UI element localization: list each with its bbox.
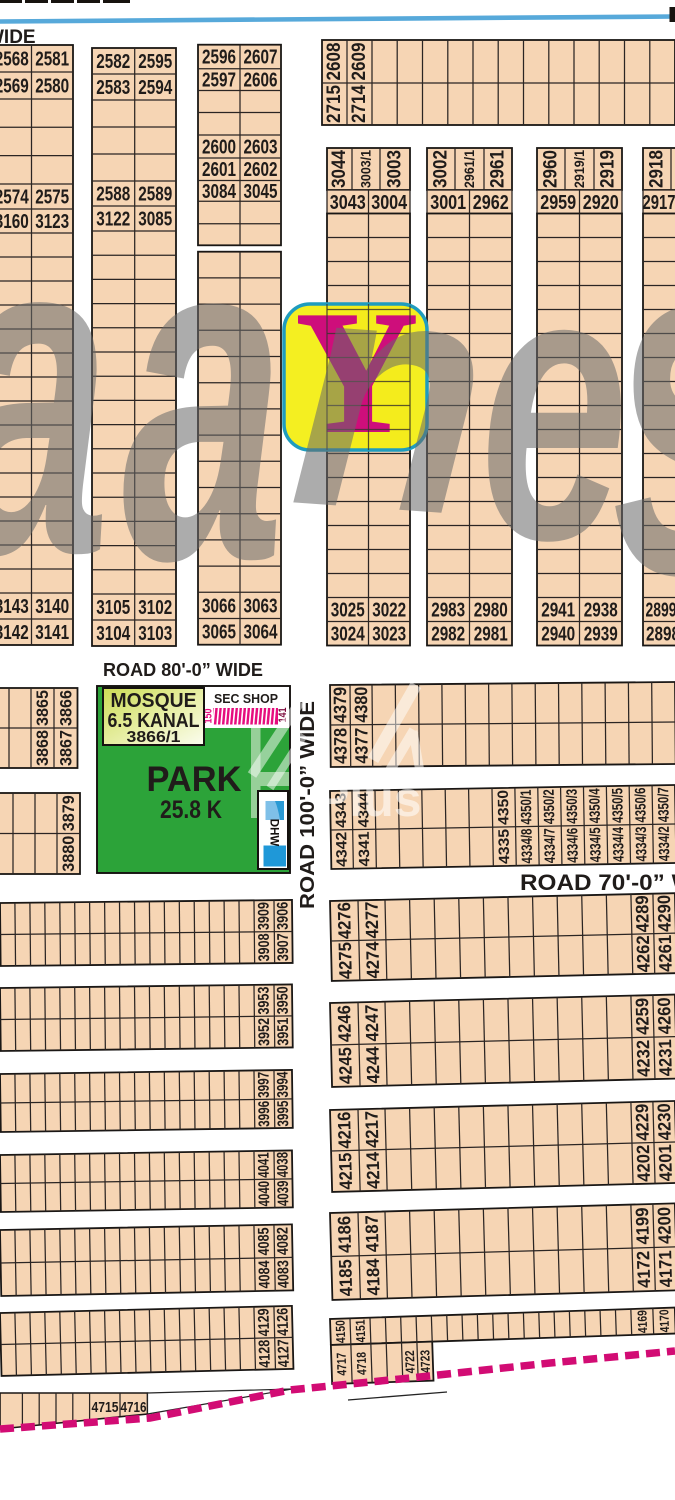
svg-text:4040: 4040 — [256, 1181, 273, 1207]
svg-text:3866/1: 3866/1 — [127, 729, 181, 746]
svg-text:4217: 4217 — [362, 1111, 383, 1149]
svg-text:3003: 3003 — [385, 150, 406, 188]
svg-text:s: s — [612, 121, 675, 678]
svg-text:4129: 4129 — [255, 1308, 273, 1337]
svg-text:4171: 4171 — [655, 1250, 675, 1288]
svg-text:3880: 3880 — [59, 836, 78, 872]
svg-text:3868: 3868 — [33, 730, 52, 766]
svg-text:2960: 2960 — [541, 150, 562, 188]
svg-text:2961/1: 2961/1 — [462, 150, 477, 188]
svg-text:4128: 4128 — [256, 1339, 274, 1368]
svg-text:2581: 2581 — [35, 49, 69, 71]
svg-text:4274: 4274 — [362, 941, 383, 978]
svg-text:3906: 3906 — [275, 901, 292, 929]
svg-text:n: n — [283, 200, 498, 586]
svg-text:4350/3: 4350/3 — [564, 789, 582, 824]
svg-text:2583: 2583 — [96, 77, 130, 99]
svg-text:PARK: PARK — [147, 759, 242, 799]
svg-text:4184: 4184 — [363, 1258, 384, 1296]
svg-text:2961: 2961 — [488, 150, 509, 188]
svg-text:e: e — [480, 189, 628, 621]
svg-text:4275: 4275 — [335, 942, 356, 979]
svg-text:3908: 3908 — [256, 933, 273, 961]
svg-text:3865: 3865 — [33, 690, 52, 726]
svg-text:4334/3: 4334/3 — [633, 826, 651, 861]
svg-text:4722: 4722 — [402, 1350, 418, 1373]
svg-text:2569: 2569 — [0, 76, 29, 98]
svg-text:4377: 4377 — [351, 728, 371, 764]
svg-text:2568: 2568 — [0, 49, 29, 71]
svg-text:4214: 4214 — [363, 1152, 384, 1190]
svg-text:2580: 2580 — [35, 76, 69, 98]
svg-text:2714: 2714 — [349, 85, 370, 123]
svg-text:4379: 4379 — [330, 687, 350, 723]
svg-text:4202: 4202 — [633, 1145, 654, 1183]
svg-text:4083: 4083 — [275, 1260, 293, 1289]
svg-text:3024: 3024 — [331, 624, 366, 646]
svg-text:ROAD 80'-0” WIDE: ROAD 80'-0” WIDE — [103, 660, 263, 680]
svg-text:ROAD 70'-0” WIDE: ROAD 70'-0” WIDE — [520, 870, 675, 895]
svg-text:4716: 4716 — [121, 1399, 147, 1416]
svg-text:2596: 2596 — [202, 47, 236, 69]
svg-text:4231: 4231 — [655, 1039, 675, 1076]
svg-text:4718: 4718 — [354, 1352, 370, 1375]
svg-text:4247: 4247 — [362, 1004, 383, 1041]
svg-text:4200: 4200 — [654, 1207, 675, 1245]
svg-text:3994: 3994 — [274, 1071, 291, 1098]
svg-text:3996: 3996 — [256, 1100, 273, 1127]
svg-text:4187: 4187 — [362, 1215, 383, 1253]
svg-text:3044: 3044 — [329, 150, 350, 188]
svg-text:4350/4: 4350/4 — [586, 788, 604, 824]
svg-text:3879: 3879 — [59, 795, 78, 831]
svg-text:4717: 4717 — [334, 1352, 350, 1375]
svg-text:3907: 3907 — [275, 933, 292, 961]
svg-text:a: a — [122, 131, 285, 659]
svg-text:3023: 3023 — [372, 624, 406, 646]
svg-text:3909: 3909 — [256, 902, 273, 930]
svg-text:4335: 4335 — [496, 829, 514, 864]
svg-text:3952: 3952 — [256, 1018, 273, 1046]
svg-text:4244: 4244 — [363, 1046, 384, 1083]
svg-text:4334/2: 4334/2 — [656, 826, 674, 861]
svg-text:2607: 2607 — [244, 47, 278, 69]
svg-text:2983: 2983 — [431, 600, 465, 622]
svg-text:2606: 2606 — [244, 70, 278, 92]
svg-text:2919/1: 2919/1 — [572, 150, 587, 188]
svg-text:4715: 4715 — [92, 1399, 119, 1416]
svg-text:4230: 4230 — [654, 1103, 675, 1141]
svg-text:2608: 2608 — [324, 43, 345, 81]
svg-text:3951: 3951 — [275, 1017, 292, 1046]
svg-text:4380: 4380 — [351, 687, 371, 723]
svg-text:4170: 4170 — [656, 1309, 672, 1332]
svg-text:4126: 4126 — [274, 1307, 292, 1336]
svg-text:2597: 2597 — [202, 70, 236, 92]
svg-text:4201: 4201 — [655, 1144, 675, 1182]
svg-text:4290: 4290 — [654, 895, 675, 932]
svg-text:4350/2: 4350/2 — [541, 789, 559, 824]
svg-text:4039: 4039 — [275, 1180, 292, 1206]
svg-text:2609: 2609 — [349, 43, 370, 81]
svg-text:3950: 3950 — [275, 986, 292, 1014]
svg-text:4350: 4350 — [495, 790, 513, 825]
svg-text:4277: 4277 — [362, 901, 383, 938]
svg-text:3867: 3867 — [56, 730, 75, 766]
svg-text:3953: 3953 — [255, 986, 272, 1015]
svg-text:SEC SHOP: SEC SHOP — [214, 692, 278, 706]
svg-text:4041: 4041 — [255, 1152, 272, 1178]
svg-text:4172: 4172 — [633, 1251, 654, 1289]
svg-text:4169: 4169 — [634, 1310, 650, 1333]
svg-text:4185: 4185 — [335, 1259, 356, 1297]
svg-text:4259: 4259 — [632, 998, 653, 1035]
svg-text:2940: 2940 — [541, 624, 575, 646]
svg-text:3002: 3002 — [431, 150, 452, 188]
svg-text:4334/4: 4334/4 — [610, 826, 628, 862]
svg-text:4262: 4262 — [633, 935, 654, 972]
svg-text:4378: 4378 — [330, 728, 350, 764]
svg-text:4199: 4199 — [632, 1207, 653, 1245]
svg-text:3866: 3866 — [56, 690, 75, 726]
svg-text:4038: 4038 — [274, 1152, 291, 1178]
svg-text:4245: 4245 — [335, 1047, 356, 1084]
svg-text:2981: 2981 — [474, 624, 508, 646]
svg-text:4350/6: 4350/6 — [632, 787, 650, 822]
svg-text:3025: 3025 — [331, 600, 365, 622]
svg-text:4334/8: 4334/8 — [518, 828, 536, 863]
svg-text:Plus: Plus — [316, 771, 422, 827]
svg-text:4246: 4246 — [334, 1005, 355, 1042]
svg-text:4082: 4082 — [274, 1227, 292, 1255]
svg-text:4350/7: 4350/7 — [655, 787, 673, 822]
svg-text:2594: 2594 — [138, 77, 173, 99]
svg-text:2982: 2982 — [431, 624, 465, 646]
svg-text:3022: 3022 — [372, 600, 406, 622]
svg-text:4127: 4127 — [275, 1339, 293, 1367]
svg-text:4276: 4276 — [334, 902, 355, 939]
svg-text:4260: 4260 — [654, 997, 675, 1034]
svg-text:4289: 4289 — [632, 895, 653, 932]
svg-text:4084: 4084 — [256, 1260, 274, 1289]
svg-text:2715: 2715 — [324, 85, 345, 123]
svg-text:3003/1: 3003/1 — [359, 150, 374, 188]
svg-text:4342: 4342 — [333, 832, 351, 867]
svg-text:4186: 4186 — [334, 1216, 355, 1254]
svg-text:3997: 3997 — [255, 1072, 272, 1098]
svg-text:4232: 4232 — [633, 1040, 654, 1077]
svg-text:4341: 4341 — [356, 831, 374, 866]
svg-text:2595: 2595 — [138, 51, 172, 73]
svg-text:4334/5: 4334/5 — [587, 827, 605, 862]
svg-text:a: a — [0, 133, 111, 651]
svg-text:4334/7: 4334/7 — [541, 828, 559, 863]
svg-text:4216: 4216 — [334, 1111, 355, 1149]
svg-text:4350/5: 4350/5 — [609, 788, 627, 823]
svg-text:4085: 4085 — [255, 1227, 273, 1256]
svg-text:DHW: DHW — [268, 819, 280, 847]
svg-text:4229: 4229 — [632, 1104, 653, 1142]
svg-text:4151: 4151 — [353, 1319, 369, 1342]
svg-text:3995: 3995 — [275, 1100, 292, 1127]
svg-text:4215: 4215 — [335, 1152, 356, 1190]
svg-text:4334/6: 4334/6 — [564, 828, 582, 863]
svg-text:4350/1: 4350/1 — [518, 789, 536, 824]
svg-text:2582: 2582 — [96, 51, 130, 73]
svg-text:4261: 4261 — [655, 935, 675, 972]
svg-text:4150: 4150 — [333, 1320, 349, 1343]
svg-text:25.8 K: 25.8 K — [160, 796, 222, 824]
svg-text:4723: 4723 — [417, 1350, 433, 1373]
